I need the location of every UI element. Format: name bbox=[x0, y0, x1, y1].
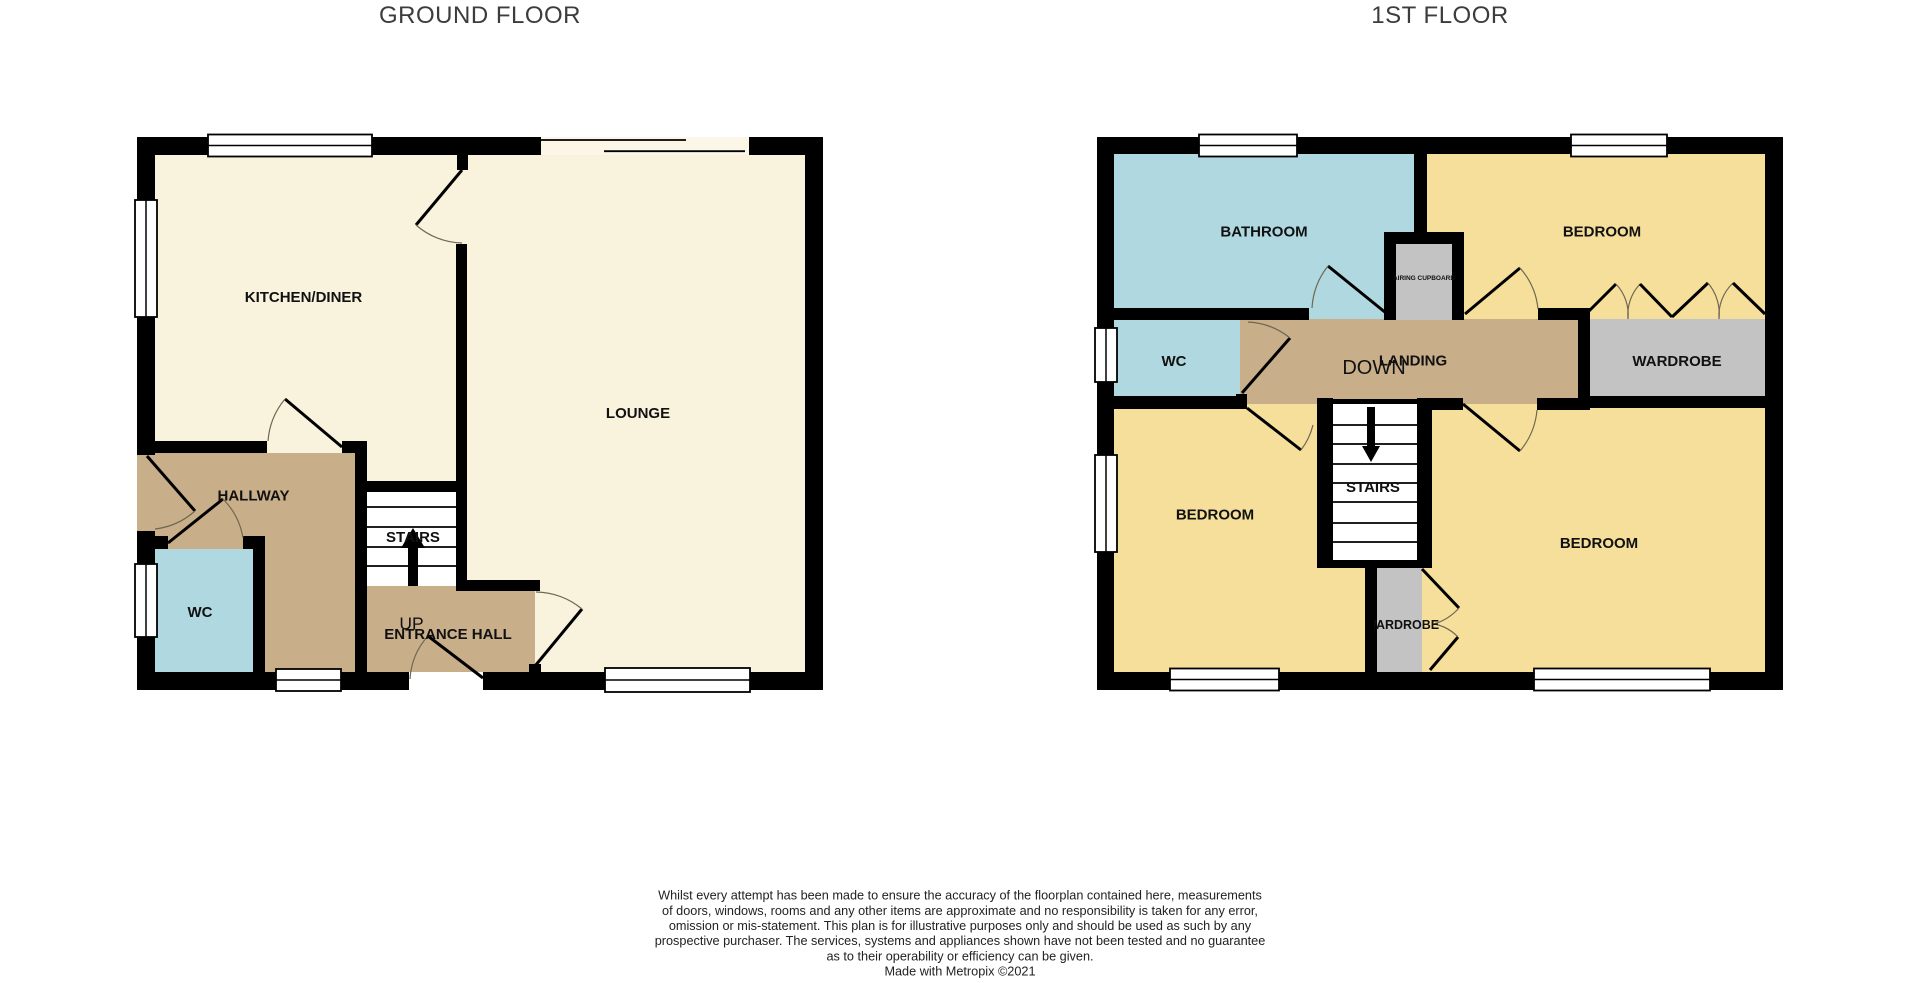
svg-text:1ST FLOOR: 1ST FLOOR bbox=[1371, 2, 1508, 29]
svg-text:AIRING CUPBOARD: AIRING CUPBOARD bbox=[1393, 275, 1455, 282]
svg-text:WARDROBE: WARDROBE bbox=[1365, 618, 1439, 632]
svg-text:BEDROOM: BEDROOM bbox=[1176, 507, 1254, 524]
svg-text:KITCHEN/DINER: KITCHEN/DINER bbox=[245, 289, 363, 306]
svg-text:WC: WC bbox=[1162, 353, 1187, 370]
svg-text:HALLWAY: HALLWAY bbox=[218, 488, 290, 505]
svg-text:omission or mis-statement. Thi: omission or mis-statement. This plan is … bbox=[669, 919, 1252, 933]
svg-text:WARDROBE: WARDROBE bbox=[1632, 353, 1721, 370]
svg-text:BEDROOM: BEDROOM bbox=[1563, 224, 1641, 241]
svg-text:STAIRS: STAIRS bbox=[386, 529, 440, 546]
svg-text:as to their operability or eff: as to their operability or efficiency ca… bbox=[826, 949, 1093, 963]
svg-text:Made with Metropix ©2021: Made with Metropix ©2021 bbox=[884, 965, 1035, 978]
svg-text:STAIRS: STAIRS bbox=[1346, 479, 1400, 496]
svg-text:BEDROOM: BEDROOM bbox=[1560, 535, 1638, 552]
svg-text:ENTRANCE HALL: ENTRANCE HALL bbox=[384, 626, 512, 643]
svg-text:BATHROOM: BATHROOM bbox=[1220, 224, 1307, 241]
svg-text:DOWN: DOWN bbox=[1342, 357, 1405, 379]
svg-text:Whilst every attempt has been: Whilst every attempt has been made to en… bbox=[658, 889, 1262, 903]
svg-text:WC: WC bbox=[188, 604, 213, 621]
svg-text:GROUND FLOOR: GROUND FLOOR bbox=[379, 2, 581, 29]
svg-text:LOUNGE: LOUNGE bbox=[606, 405, 670, 422]
svg-text:of doors, windows, rooms and a: of doors, windows, rooms and any other i… bbox=[662, 904, 1258, 918]
svg-text:prospective purchaser. The ser: prospective purchaser. The services, sys… bbox=[655, 934, 1266, 948]
